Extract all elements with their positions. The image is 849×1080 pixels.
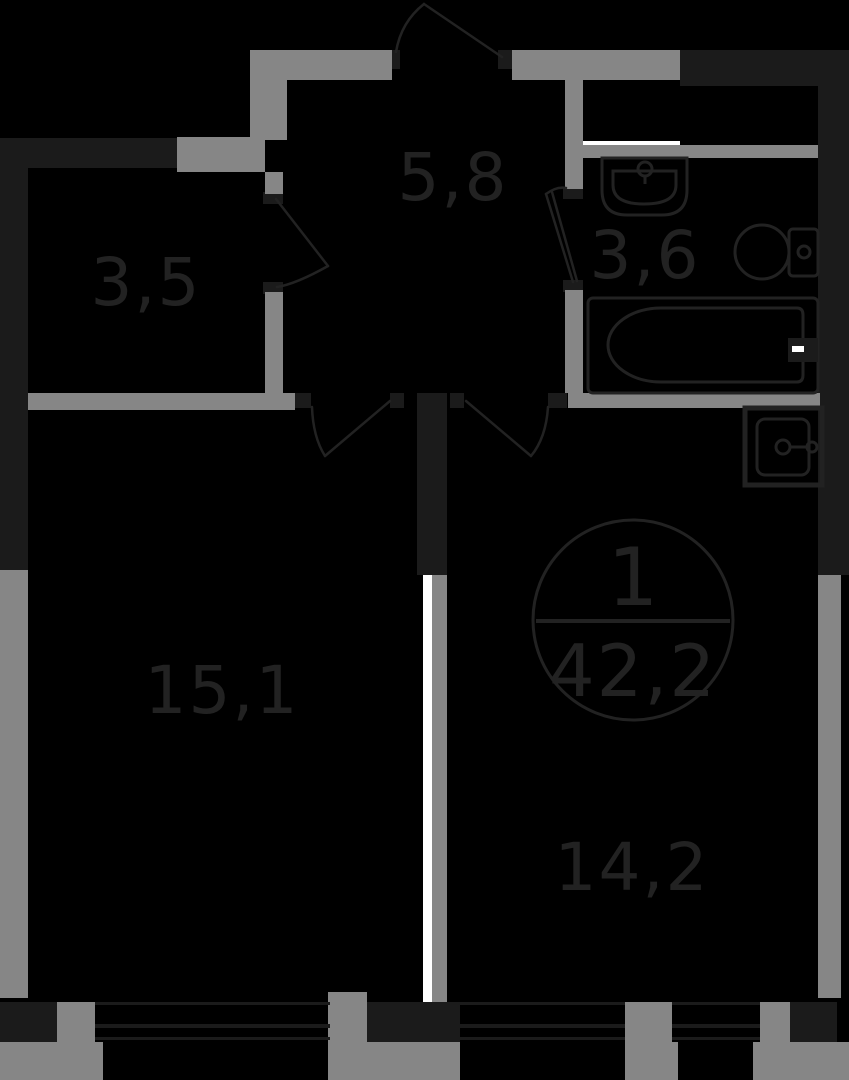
window-right (818, 575, 841, 998)
walls-gray (28, 50, 820, 410)
partition-light-line (423, 575, 432, 1002)
floor-plan-drawing: 1 42,2 3,5 5,8 3,6 15,1 14,2 (0, 0, 849, 1080)
apartment-stamp: 1 42,2 (533, 520, 733, 720)
sink (602, 158, 687, 215)
room-area-label-bathroom: 3,6 (590, 217, 701, 294)
total-area: 42,2 (549, 629, 717, 713)
storage-door (276, 199, 328, 287)
bathroom-door (546, 188, 577, 282)
kitchen-door (466, 401, 548, 456)
living-room-door (312, 401, 390, 456)
room-area-label-storage: 3,5 (91, 244, 202, 321)
partition-gray-line (432, 575, 447, 1002)
apartment-number: 1 (608, 531, 659, 624)
entrance-door (396, 4, 502, 57)
window-left (0, 570, 28, 998)
toilet (735, 225, 818, 279)
room-area-label-kitchen: 14,2 (555, 829, 710, 906)
bathtub (588, 298, 818, 393)
floor-plan: 1 42,2 3,5 5,8 3,6 15,1 14,2 (0, 0, 849, 1080)
kitchen-sink (745, 408, 822, 485)
room-area-label-hallway: 5,8 (398, 139, 509, 216)
room-area-label-living-room: 15,1 (145, 652, 300, 729)
